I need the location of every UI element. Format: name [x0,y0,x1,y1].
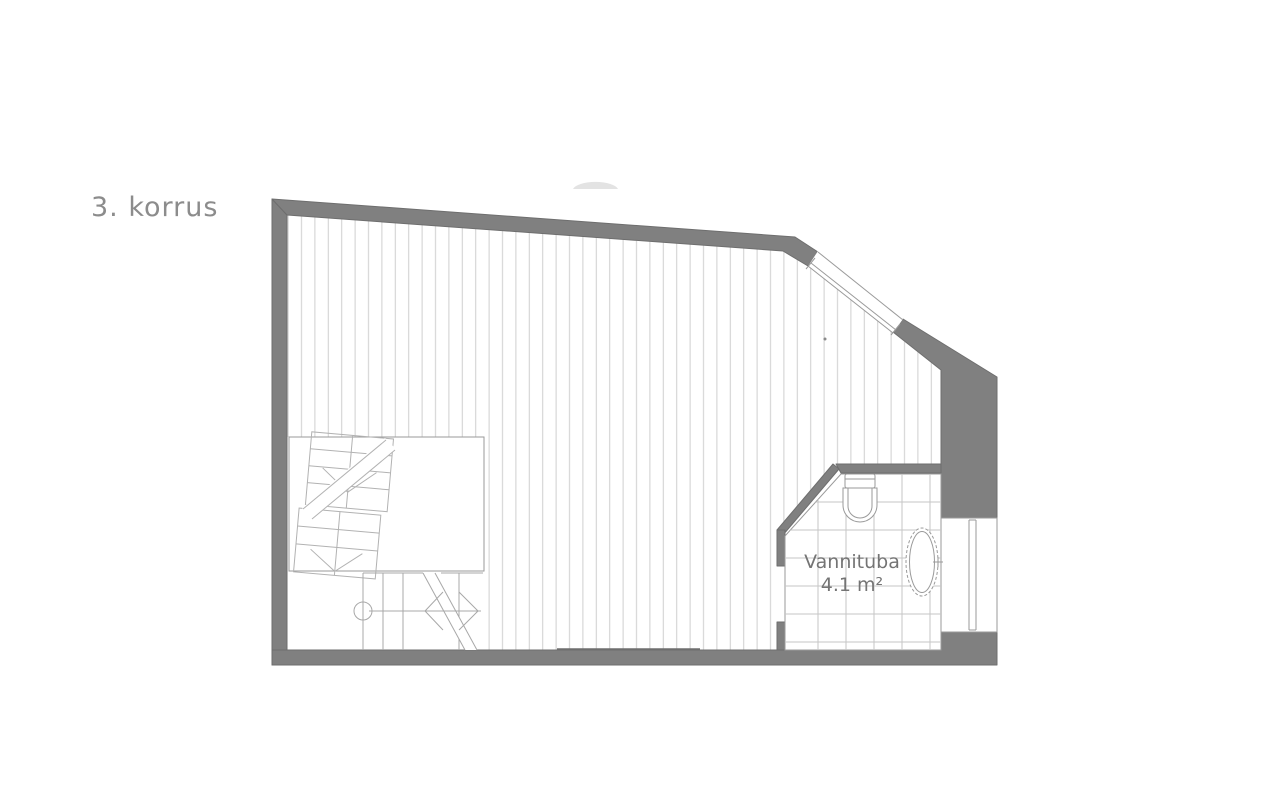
bathroom-door-jamb-lower [777,622,785,650]
left-wall [272,199,287,665]
bathroom-name: Vannituba [777,551,927,574]
bathroom-top-wall [836,464,941,473]
dome-shape [573,182,618,189]
toilet [843,474,877,522]
bathroom-label: Vannituba 4.1 m² [777,551,927,598]
floor-plan-page: 3. korrus Vannituba 4.1 m² [0,0,1268,800]
right-wall-window [941,518,997,632]
dot-mark [824,338,827,341]
floor-plan-drawing [0,0,1268,800]
lower-stair-flight [354,573,483,650]
floor-title: 3. korrus [91,192,218,223]
bathroom-area: 4.1 m² [777,574,927,597]
